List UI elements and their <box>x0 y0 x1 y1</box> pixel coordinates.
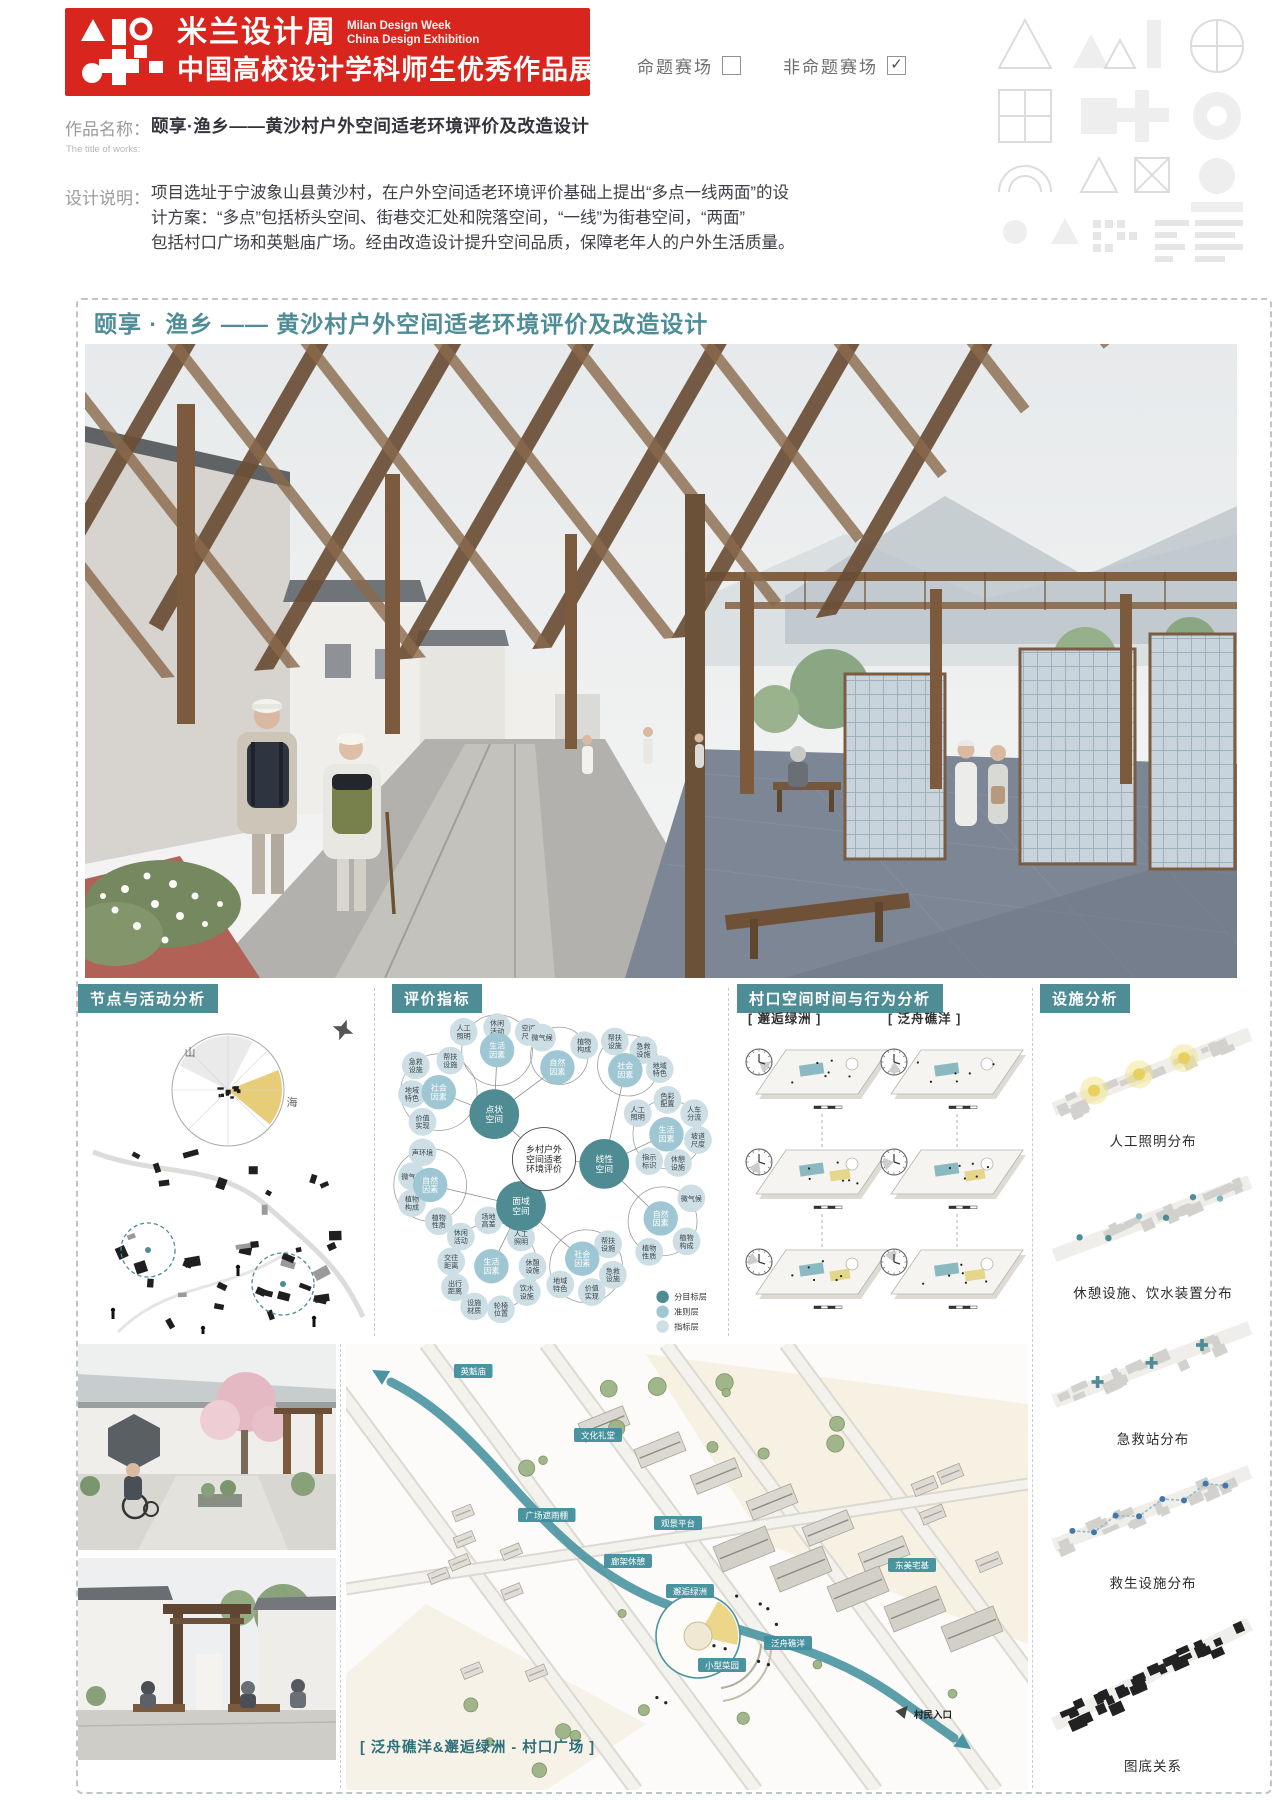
banner-en-line1: Milan Design Week <box>347 20 451 32</box>
checkbox-proposition[interactable]: 命题赛场 <box>637 53 741 78</box>
design-note-label: 设计说明： <box>65 184 150 209</box>
svg-text:观景平台: 观景平台 <box>661 1519 695 1529</box>
svg-text:廊架休憩: 廊架休憩 <box>611 1557 646 1567</box>
svg-text:面域空间: 面域空间 <box>512 1195 530 1216</box>
svg-text:微气候: 微气候 <box>681 1194 702 1203</box>
svg-text:自然因素: 自然因素 <box>422 1175 438 1194</box>
checkbox-non-proposition-label: 非命题赛场 <box>783 53 878 78</box>
svg-text:乡村户外空间适老环境评价: 乡村户外空间适老环境评价 <box>526 1143 562 1174</box>
deco-geometric-pattern <box>985 6 1275 274</box>
check-icon: ✓ <box>890 56 903 73</box>
svg-text:自然因素: 自然因素 <box>653 1209 669 1228</box>
checkbox-non-proposition-box[interactable]: ✓ <box>887 56 906 75</box>
work-name-sub: The title of works: <box>66 144 140 155</box>
svg-text:指标层: 指标层 <box>674 1321 699 1331</box>
svg-text:场地高差: 场地高差 <box>481 1212 495 1229</box>
nodes-activity-map: 山海 <box>78 1012 368 1334</box>
svg-text:地域特色: 地域特色 <box>553 1276 567 1293</box>
svg-text:自然因素: 自然因素 <box>549 1058 565 1077</box>
svg-text:坡道尺度: 坡道尺度 <box>691 1132 705 1149</box>
svg-text:休憩设施: 休憩设施 <box>525 1258 539 1275</box>
main-render <box>85 344 1237 978</box>
panel-nodes-header: 节点与活动分析 <box>78 984 218 1013</box>
facility-caption: 图底关系 <box>1042 1755 1264 1775</box>
banner-en-subtitle: Milan Design Week China Design Exhibitio… <box>347 20 479 47</box>
svg-text:英魁庙: 英魁庙 <box>460 1367 486 1377</box>
photo-courtyard-render <box>78 1344 336 1550</box>
svg-text:地域特色: 地域特色 <box>653 1061 667 1078</box>
svg-text:文化礼堂: 文化礼堂 <box>581 1431 615 1441</box>
svg-text:人工照明: 人工照明 <box>514 1230 528 1246</box>
checkbox-proposition-label: 命题赛场 <box>637 53 713 78</box>
svg-text:休闲活动: 休闲活动 <box>454 1228 468 1245</box>
svg-text:价值实现: 价值实现 <box>415 1113 429 1130</box>
board-title: 颐享 · 渔乡 —— 黄沙村户外空间适老环境评价及改造设计 <box>94 305 708 339</box>
panel-facility-header: 设施分析 <box>1040 984 1130 1013</box>
dashed-divider <box>374 988 375 1336</box>
svg-text:人车分流: 人车分流 <box>687 1105 701 1122</box>
facility-caption: 救生设施分布 <box>1042 1572 1264 1592</box>
svg-text:微气候: 微气候 <box>531 1033 552 1042</box>
svg-text:泛舟礁洋: 泛舟礁洋 <box>771 1639 806 1649</box>
svg-text:邂逅绿洲: 邂逅绿洲 <box>673 1587 707 1597</box>
work-name-label: 作品名称： <box>65 115 150 140</box>
svg-text:帮扶设施: 帮扶设施 <box>601 1236 615 1253</box>
village-gate-plaza-map: 英魁庙文化礼堂广场遮雨棚观景平台廊架休憩邂逅绿洲小型菜园泛舟礁洋东美宅基村民入口 <box>346 1344 1028 1790</box>
svg-text:植物性质: 植物性质 <box>432 1213 446 1230</box>
village-time-behavior-diagram <box>734 1030 1026 1334</box>
category-checkbox-row: 命题赛场 非命题赛场 ✓ <box>637 52 948 78</box>
svg-text:休憩设施: 休憩设施 <box>671 1155 685 1172</box>
photo-street-render <box>78 1558 336 1760</box>
svg-text:地域特色: 地域特色 <box>405 1086 419 1103</box>
svg-text:点状空间: 点状空间 <box>485 1103 503 1124</box>
svg-text:饮水设施: 饮水设施 <box>520 1284 534 1301</box>
facility-caption: 人工照明分布 <box>1042 1130 1264 1150</box>
svg-text:设施材质: 设施材质 <box>467 1298 481 1315</box>
svg-text:植物构成: 植物构成 <box>577 1037 591 1054</box>
svg-text:社会因素: 社会因素 <box>574 1249 590 1268</box>
svg-text:指示标识: 指示标识 <box>642 1153 656 1170</box>
svg-text:山: 山 <box>185 1046 196 1059</box>
svg-text:帮扶设施: 帮扶设施 <box>608 1033 622 1050</box>
svg-text:东美宅基: 东美宅基 <box>895 1561 930 1571</box>
banner-main-title: 中国高校设计学科师生优秀作品展 <box>177 52 597 88</box>
svg-text:急救设施: 急救设施 <box>606 1266 620 1283</box>
svg-text:交往距离: 交往距离 <box>444 1253 458 1270</box>
design-note-text: 项目选址于宁波象山县黄沙村，在户外空间适老环境评价基础上提出“多点一线两面”的设… <box>151 181 851 256</box>
svg-text:轮椅位置: 轮椅位置 <box>494 1301 508 1318</box>
svg-text:海: 海 <box>287 1095 298 1109</box>
svg-text:色彩配置: 色彩配置 <box>660 1091 674 1108</box>
svg-text:生活因素: 生活因素 <box>489 1040 505 1059</box>
evaluation-bubble-diagram: 人工照明休闲活动空间尺度微气候植物构成急救设施帮扶设施地域特色价值实现帮扶设施急… <box>390 1008 742 1338</box>
svg-text:村民入口: 村民入口 <box>914 1709 952 1721</box>
svg-text:价值实现: 价值实现 <box>585 1284 599 1301</box>
dashed-divider <box>340 1344 341 1788</box>
svg-text:人工照明: 人工照明 <box>457 1024 471 1040</box>
svg-text:分目标层: 分目标层 <box>674 1292 707 1302</box>
svg-text:植物构成: 植物构成 <box>405 1195 419 1212</box>
milan-design-week-logo-icon <box>79 17 165 87</box>
svg-text:社会因素: 社会因素 <box>431 1083 447 1102</box>
red-banner: 米兰设计周 Milan Design Week China Design Exh… <box>65 8 590 96</box>
facility-caption: 休憩设施、饮水装置分布 <box>1042 1282 1264 1302</box>
village-col-label-2: [ 泛舟礁洋 ] <box>888 1008 961 1027</box>
svg-text:声环境: 声环境 <box>412 1148 433 1157</box>
village-col-label-1: [ 邂逅绿洲 ] <box>748 1008 821 1027</box>
map-caption: [ 泛舟礁洋&邂逅绿洲 - 村口广场 ] <box>360 1736 595 1757</box>
svg-text:出行距离: 出行距离 <box>448 1279 462 1296</box>
svg-text:急救设施: 急救设施 <box>636 1042 650 1059</box>
dashed-divider <box>1032 988 1033 1788</box>
facility-caption: 急救站分布 <box>1042 1428 1264 1448</box>
checkbox-proposition-box[interactable] <box>722 56 741 75</box>
svg-text:小型菜园: 小型菜园 <box>705 1661 739 1671</box>
svg-text:帮扶设施: 帮扶设施 <box>443 1052 457 1069</box>
facility-analysis-column <box>1042 1012 1264 1788</box>
svg-text:生活因素: 生活因素 <box>483 1257 499 1276</box>
svg-text:准则层: 准则层 <box>674 1307 699 1317</box>
svg-text:植物性质: 植物性质 <box>642 1243 656 1260</box>
svg-text:社会因素: 社会因素 <box>617 1061 633 1080</box>
work-name-value: 颐享·渔乡——黄沙村户外空间适老环境评价及改造设计 <box>151 113 589 138</box>
banner-en-line2: China Design Exhibition <box>347 34 479 46</box>
svg-text:广场遮雨棚: 广场遮雨棚 <box>525 1511 568 1521</box>
svg-text:急救设施: 急救设施 <box>409 1057 423 1074</box>
svg-text:人工照明: 人工照明 <box>631 1106 645 1122</box>
banner-cn-title: 米兰设计周 <box>177 16 337 50</box>
svg-text:植物构成: 植物构成 <box>679 1233 693 1250</box>
svg-text:线性空间: 线性空间 <box>595 1153 613 1174</box>
checkbox-non-proposition[interactable]: 非命题赛场 ✓ <box>783 53 906 78</box>
banner-text: 米兰设计周 Milan Design Week China Design Exh… <box>177 16 597 88</box>
poster-page: 米兰设计周 Milan Design Week China Design Exh… <box>0 0 1280 1810</box>
svg-text:生活因素: 生活因素 <box>658 1125 674 1144</box>
